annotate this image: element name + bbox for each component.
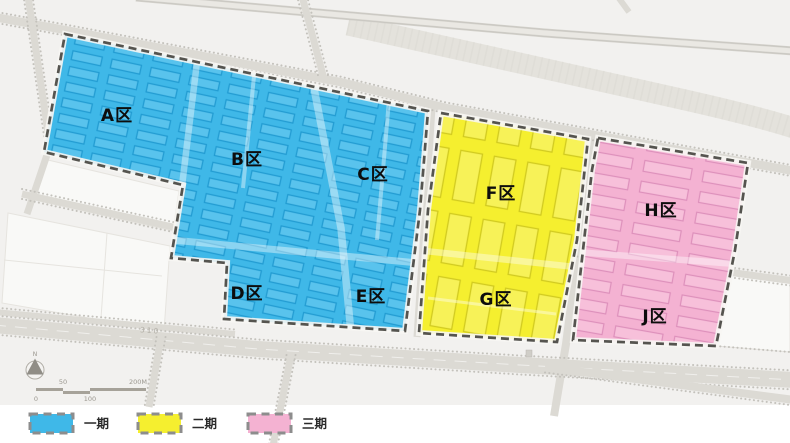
- zone-h-label: H区: [644, 201, 677, 221]
- phase2-zone: F区 G区: [419, 113, 588, 342]
- site-plan-map: 310 A区 B区 C区 D区 E区 F区 G区: [0, 0, 790, 443]
- zone-a-label: A区: [101, 106, 133, 126]
- scale-tick-0: 0: [34, 395, 38, 403]
- legend-strip-background: [0, 405, 790, 443]
- scale-segment: [90, 388, 146, 391]
- legend-item-phase2: 二期: [138, 414, 217, 433]
- phase2-legend-label: 二期: [192, 416, 217, 431]
- phase3-legend-label: 三期: [302, 416, 327, 431]
- site-plan-page: 310 A区 B区 C区 D区 E区 F区 G区: [0, 0, 790, 443]
- zone-f-label: F区: [486, 184, 517, 204]
- phase1-legend-label: 一期: [84, 416, 109, 431]
- road-marker: [526, 350, 532, 357]
- zone-j-label: J区: [641, 307, 667, 327]
- zone-c-label: C区: [357, 165, 388, 185]
- zone-d-label: D区: [230, 284, 263, 304]
- legend-item-phase1: 一期: [30, 414, 109, 433]
- legend-item-phase3: 三期: [248, 414, 327, 433]
- phase3-zone: H区 J区: [573, 138, 748, 346]
- zone-e-label: E区: [356, 287, 387, 307]
- north-arrow-label: N: [33, 351, 38, 358]
- scale-segment: [63, 391, 90, 394]
- phase1-swatch: [30, 414, 73, 433]
- road-label-310: 310: [140, 325, 161, 335]
- phase3-swatch: [248, 414, 291, 433]
- phase2-swatch: [138, 414, 181, 433]
- zone-b-label: B区: [231, 150, 263, 170]
- scale-tick-200: 200M: [129, 378, 147, 386]
- scale-segment: [36, 388, 63, 391]
- scale-tick-50: 50: [59, 378, 67, 386]
- zone-g-label: G区: [480, 290, 513, 310]
- scale-tick-100: 100: [84, 395, 96, 403]
